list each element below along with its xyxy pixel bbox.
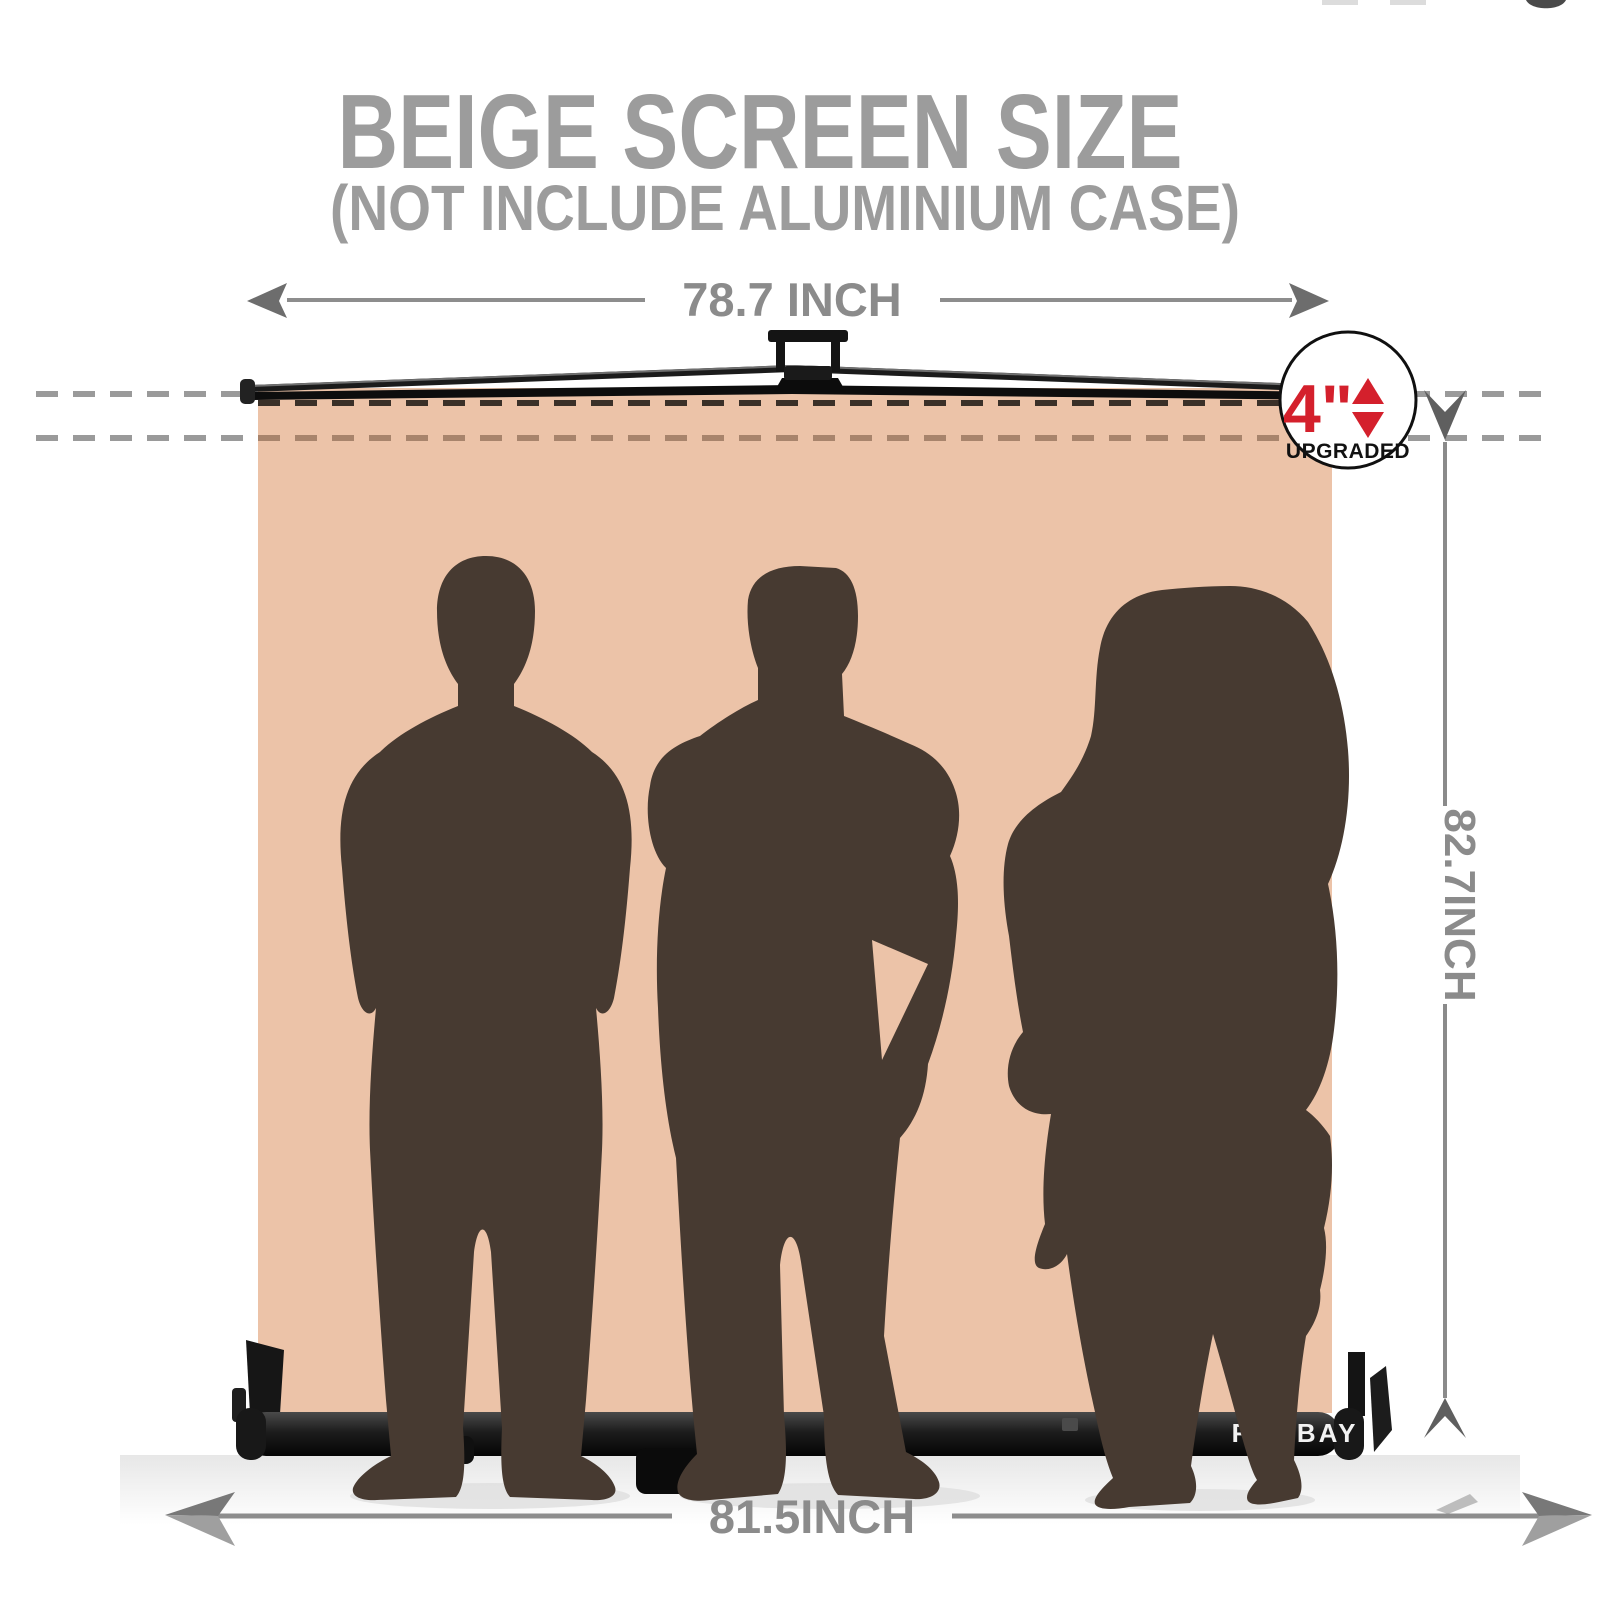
dimension-top-width: 78.7 INCH xyxy=(247,273,1329,326)
remnant-mark xyxy=(1390,0,1426,5)
dimension-top-label: 78.7 INCH xyxy=(682,273,901,326)
case-latch xyxy=(1062,1418,1078,1431)
dimension-right-height: 82.7INCH xyxy=(1424,390,1484,1514)
left-bracket xyxy=(246,1340,284,1414)
badge-value: 4" xyxy=(1283,371,1353,447)
remnant-mark xyxy=(1526,0,1566,8)
badge-label: UPGRADED xyxy=(1286,440,1410,463)
top-edge-remnants xyxy=(1322,0,1566,8)
bar-end-cap-left xyxy=(240,379,255,404)
arrow-right-icon xyxy=(1289,283,1329,318)
remnant-mark xyxy=(1322,0,1358,5)
handle-leg-left xyxy=(776,340,785,372)
upgrade-badge: 4" UPGRADED xyxy=(1280,332,1416,468)
dimension-bottom-label: 81.5INCH xyxy=(709,1490,915,1543)
top-frame-bar xyxy=(240,330,1344,404)
arrow-down-icon xyxy=(1424,390,1466,440)
diagram-canvas: RAUBAY 4" UPGRADED 78.7 INCH 82.7INCH xyxy=(0,0,1600,1600)
heading-group: BEIGE SCREEN SIZE (NOT INCLUDE ALUMINIUM… xyxy=(330,73,1240,244)
right-arm xyxy=(1370,1366,1392,1452)
arrow-right-icon xyxy=(1522,1492,1592,1516)
dimension-right-label: 82.7INCH xyxy=(1435,808,1484,1001)
arrow-right-icon-shade xyxy=(1522,1515,1592,1546)
arrow-up-icon xyxy=(1424,1398,1466,1438)
center-bracket xyxy=(774,378,846,392)
handle-leg-right xyxy=(831,340,840,372)
arrow-left-icon xyxy=(247,283,287,318)
product-size-diagram: RAUBAY 4" UPGRADED 78.7 INCH 82.7INCH xyxy=(0,0,1600,1600)
page-subtitle: (NOT INCLUDE ALUMINIUM CASE) xyxy=(330,172,1240,244)
handle-mount xyxy=(784,366,832,380)
case-cap-left xyxy=(236,1408,266,1460)
right-post xyxy=(1348,1352,1365,1416)
